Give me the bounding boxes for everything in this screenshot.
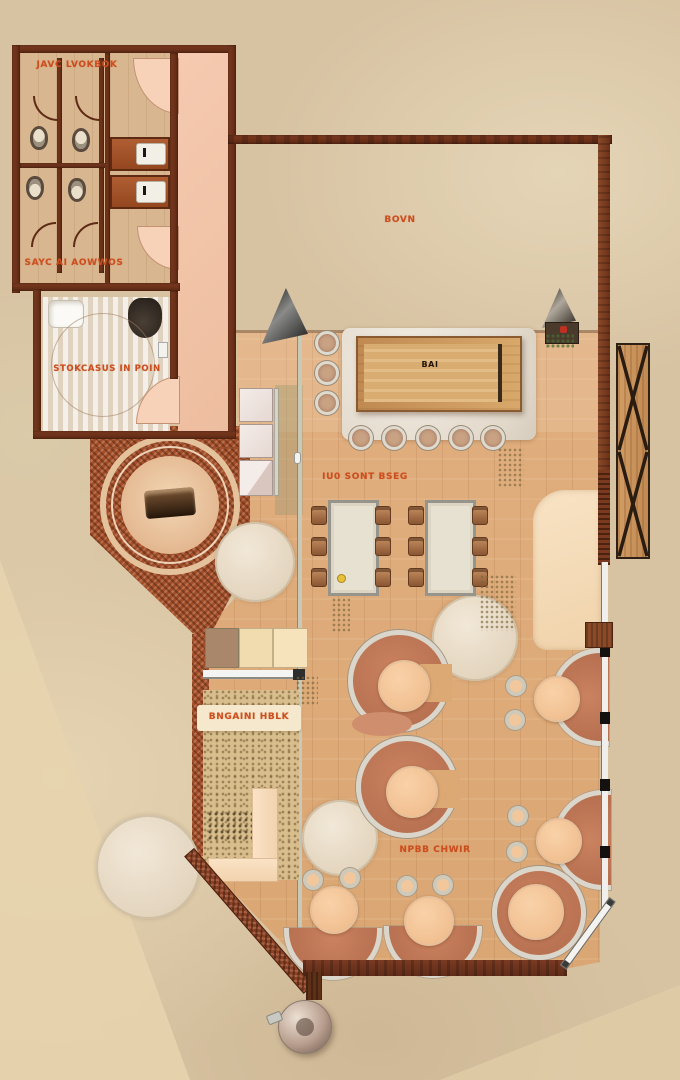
dining-table: [425, 500, 476, 596]
chair: [375, 537, 391, 556]
post-stub: [306, 972, 322, 1000]
chair: [472, 537, 488, 556]
label-garden: BNGAINI HBLK: [197, 712, 301, 722]
dried-plant: [498, 448, 524, 488]
east-wall-slats: [598, 470, 610, 565]
bar-stool: [349, 426, 373, 450]
chair: [375, 568, 391, 587]
booth-round-table: [404, 896, 454, 946]
cup: [337, 574, 346, 583]
booth-round-table: [310, 886, 358, 934]
red-jar: [560, 326, 567, 333]
stall-wall: [20, 163, 108, 168]
toilet: [68, 178, 86, 202]
service-counter-block: [205, 628, 239, 668]
booth-stool: [507, 842, 527, 862]
dining-table: [328, 500, 379, 596]
booth-stool: [340, 868, 360, 888]
booth-round-table: [378, 660, 430, 712]
bar-counter-top: [364, 344, 502, 402]
chair: [408, 568, 424, 587]
bar-stool: [449, 426, 473, 450]
dried-plant: [332, 598, 350, 632]
booth-stool: [303, 870, 323, 890]
booth-stool: [505, 710, 525, 730]
pendant-lamp-core: [296, 1018, 314, 1036]
booth-stool: [433, 875, 453, 895]
faucet: [143, 148, 146, 157]
round-rug: [215, 522, 295, 602]
vestibule: [178, 53, 231, 431]
label-booth-area: NPBB CHWIR: [385, 845, 485, 855]
chair: [472, 506, 488, 525]
south-wall: [303, 960, 567, 976]
service-counter-block: [239, 628, 273, 668]
chair: [311, 568, 327, 587]
chair: [311, 537, 327, 556]
wall-pier: [585, 622, 613, 648]
toilet: [72, 128, 90, 152]
sink-basin: [136, 181, 166, 203]
booth-connector: [352, 712, 412, 736]
service-counter-block: [273, 628, 308, 668]
shelf-plant: [546, 334, 574, 348]
window-mullion: [600, 712, 610, 724]
window-mullion: [600, 846, 610, 858]
stair-step: [239, 424, 273, 458]
floor-plan: BAI BNGAINI HBLK: [0, 0, 680, 1080]
label-restroom-bottom: SAYC AI AOWWOS: [18, 258, 130, 268]
booth-round-table: [508, 884, 564, 940]
outdoor-round-rug: [96, 815, 200, 919]
label-terrace: BOVN: [360, 215, 440, 225]
wall: [170, 53, 178, 283]
booth-stool: [506, 676, 526, 696]
sink-basin: [136, 143, 166, 165]
label-restroom-top: JAVC LVOKBOK: [22, 60, 132, 70]
trellis-screen: [616, 343, 650, 559]
booth-round-table: [386, 766, 438, 818]
booth-round-table: [534, 676, 580, 722]
label-shower-room: STOKCASUS IN POIN: [40, 364, 174, 374]
wall: [170, 291, 178, 379]
dried-plant: [480, 575, 516, 631]
bar-stool: [481, 426, 505, 450]
label-dining: IU0 SONT BSEG: [310, 472, 420, 482]
wall: [228, 45, 236, 439]
wall: [12, 45, 236, 53]
bar-stool: [315, 331, 339, 355]
service-counter-front: [203, 670, 303, 679]
bg-light-wedge-right: [440, 985, 680, 1080]
bar-stool: [416, 426, 440, 450]
bar-stool: [382, 426, 406, 450]
stair-step: [239, 460, 273, 496]
label-bar: BAI: [405, 360, 455, 369]
chair: [408, 537, 424, 556]
log-bench: [144, 487, 196, 519]
booth-round-table: [536, 818, 582, 864]
chair: [408, 506, 424, 525]
booth-stool: [508, 806, 528, 826]
wall: [12, 45, 20, 293]
chair: [375, 506, 391, 525]
toilet: [26, 176, 44, 200]
chair: [311, 506, 327, 525]
storefront-wall: [228, 135, 612, 144]
faucet: [143, 186, 146, 195]
window-mullion: [600, 779, 610, 791]
stair-step: [239, 388, 273, 422]
wall: [33, 431, 236, 439]
plant-sprig: [296, 676, 318, 706]
glass-door-handle: [294, 452, 301, 464]
wall: [33, 289, 41, 439]
bar-stool: [315, 361, 339, 385]
bar-stool: [315, 391, 339, 415]
wc-fixture: [158, 342, 168, 358]
booth-stool: [397, 876, 417, 896]
toilet: [30, 126, 48, 150]
